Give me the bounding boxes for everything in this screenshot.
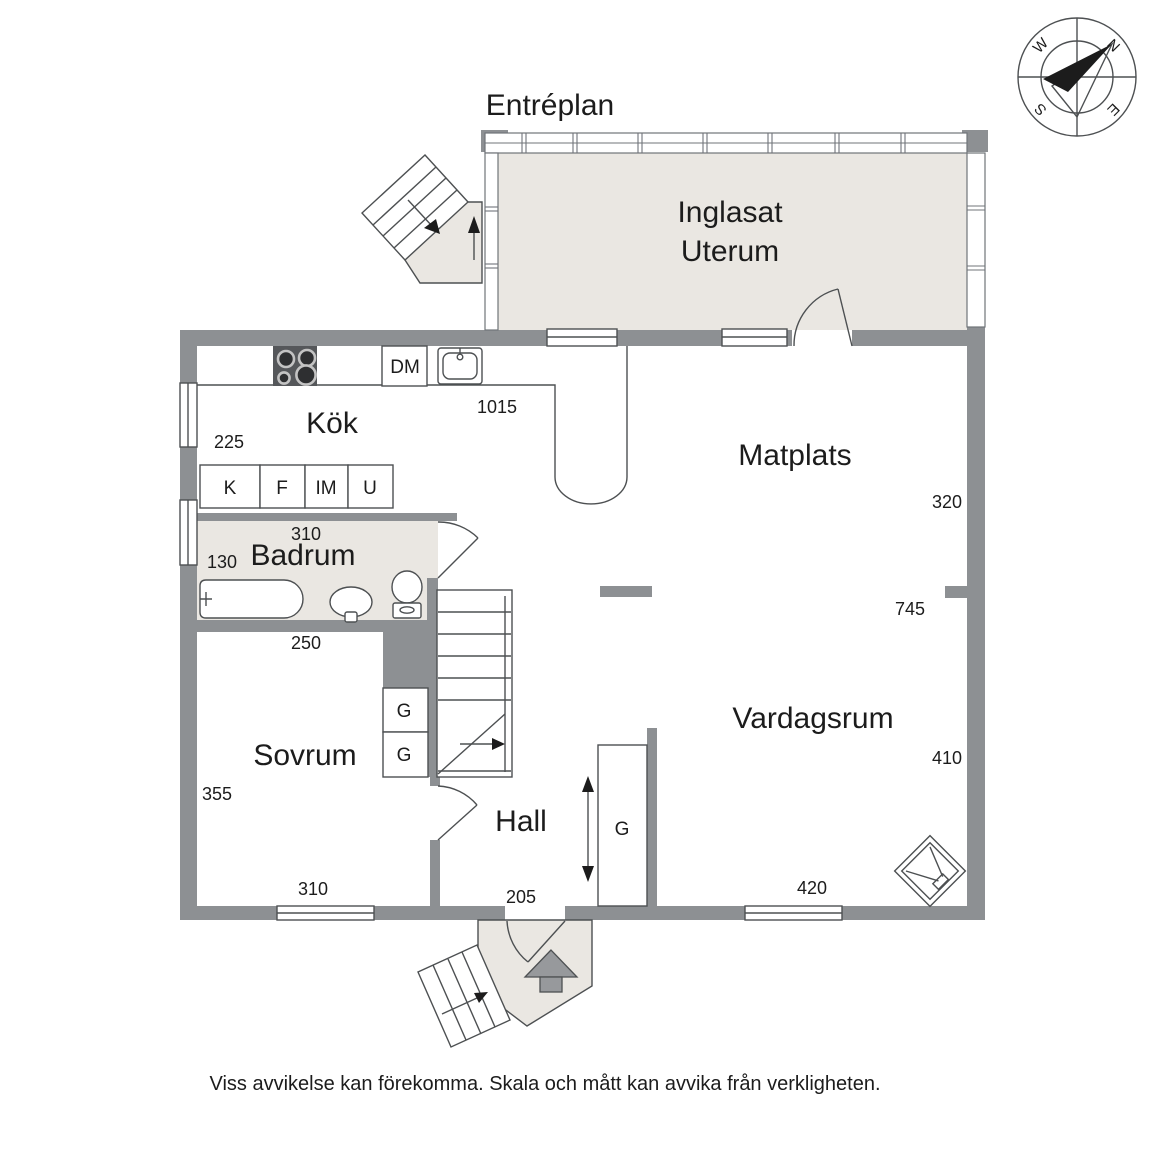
compass-s: S bbox=[1031, 100, 1050, 119]
toilet bbox=[392, 571, 422, 618]
label-cabinet-im: IM bbox=[315, 478, 336, 499]
dim-kitchen-depth: 225 bbox=[214, 432, 244, 452]
wall-top-segment bbox=[500, 330, 547, 346]
wall-hall-lower bbox=[430, 840, 440, 906]
bathtub bbox=[200, 580, 303, 618]
wall-top-left-segment bbox=[180, 330, 500, 346]
wall-bottom-segment bbox=[180, 906, 277, 920]
dim-hall-bottom: 205 bbox=[506, 887, 536, 907]
room-label-bedroom: Sovrum bbox=[253, 739, 356, 772]
dim-bedroom-top: 250 bbox=[291, 633, 321, 653]
wall-bottom-segment bbox=[374, 906, 505, 920]
label-cabinet-u: U bbox=[363, 478, 377, 499]
wall-freestanding bbox=[600, 586, 652, 597]
wardrobe-slide-arrow bbox=[582, 776, 594, 882]
storage bbox=[383, 688, 647, 906]
dim-bathroom-depth: 130 bbox=[207, 552, 237, 572]
dim-dining-right: 320 bbox=[932, 492, 962, 512]
room-label-kitchen: Kök bbox=[306, 407, 359, 440]
label-cabinet-f: F bbox=[276, 478, 288, 499]
disclaimer-text: Viss avvikelse kan förekomma. Skala och … bbox=[209, 1073, 880, 1095]
wall-top-segment bbox=[787, 330, 792, 346]
wall-bathroom-top bbox=[196, 513, 457, 521]
dim-living-right: 410 bbox=[932, 748, 962, 768]
wall-right-tick bbox=[945, 586, 967, 598]
room-label-hall: Hall bbox=[495, 805, 547, 838]
wall-top-segment bbox=[617, 330, 722, 346]
wall-top-segment bbox=[852, 330, 967, 346]
room-label-dining: Matplats bbox=[738, 439, 851, 472]
fireplace bbox=[895, 836, 966, 907]
dim-living-right-upper: 745 bbox=[895, 599, 925, 619]
label-closet-g-2: G bbox=[397, 745, 412, 766]
room-label-uterum-1: Inglasat bbox=[677, 196, 783, 229]
compass-n: N bbox=[1103, 36, 1123, 56]
door-bathroom bbox=[438, 522, 478, 578]
dim-bathroom-width: 310 bbox=[291, 524, 321, 544]
label-cabinet-k: K bbox=[224, 478, 237, 499]
room-label-uterum-2: Uterum bbox=[681, 235, 779, 268]
label-wardrobe-g: G bbox=[615, 819, 630, 840]
glazed-wall-left bbox=[485, 153, 498, 330]
dim-kitchen-width: 1015 bbox=[477, 397, 517, 417]
compass-rose: N W S E bbox=[1018, 18, 1136, 136]
door-bedroom bbox=[438, 786, 477, 840]
floorplan-drawing: N W S E Entréplan Inglasat Uterum Kök Ma… bbox=[0, 0, 1152, 1152]
kitchen-sink bbox=[438, 348, 482, 384]
label-closet-g-1: G bbox=[397, 701, 412, 722]
wall-block-stair bbox=[383, 620, 437, 688]
floorplan-page: N W S E Entréplan Inglasat Uterum Kök Ma… bbox=[0, 0, 1152, 1152]
page-title: Entréplan bbox=[486, 89, 614, 122]
dim-bedroom-left: 355 bbox=[202, 784, 232, 804]
glazed-wall-right bbox=[967, 153, 985, 327]
stove bbox=[273, 346, 317, 386]
wall-bottom-segment bbox=[842, 906, 985, 920]
dim-bedroom-bottom: 310 bbox=[298, 879, 328, 899]
compass-e: E bbox=[1104, 100, 1123, 119]
label-dishwasher: DM bbox=[390, 357, 420, 378]
wall-wardrobe bbox=[647, 728, 657, 910]
wall-closet-stair bbox=[428, 688, 437, 777]
wall-right bbox=[967, 327, 985, 920]
room-label-living: Vardagsrum bbox=[732, 702, 893, 735]
interior-stairs bbox=[437, 590, 512, 777]
dim-living-bottom: 420 bbox=[797, 878, 827, 898]
